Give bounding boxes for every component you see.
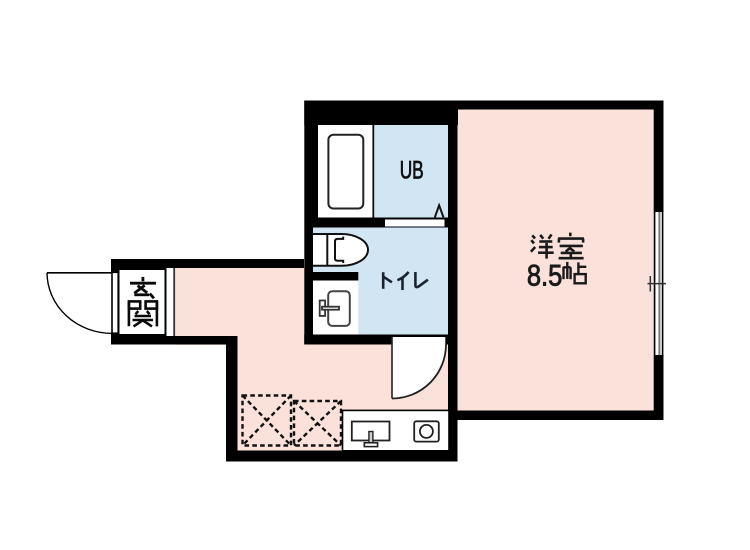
svg-text:8.5: 8.5 [527,260,563,293]
svg-text:UB: UB [400,157,424,185]
